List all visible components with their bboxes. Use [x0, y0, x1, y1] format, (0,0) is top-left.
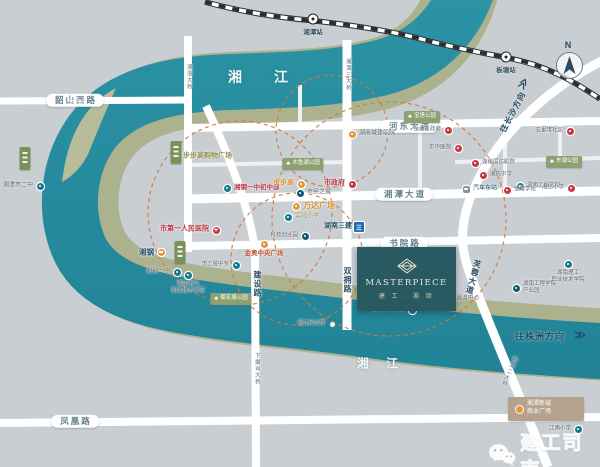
- road-fenghuang: [0, 417, 600, 423]
- xiang-river: [62, 0, 600, 352]
- road-xiangtan-avenue: [186, 191, 600, 199]
- road-shaoshan-west: [0, 100, 189, 101]
- map-canvas: 湘 江湘 江韶山西路河东大道湘潭大道书院路凤凰路湘潭大桥湘潭三大桥下摄司大桥湘潭…: [0, 0, 600, 467]
- map-base-svg: [0, 0, 600, 467]
